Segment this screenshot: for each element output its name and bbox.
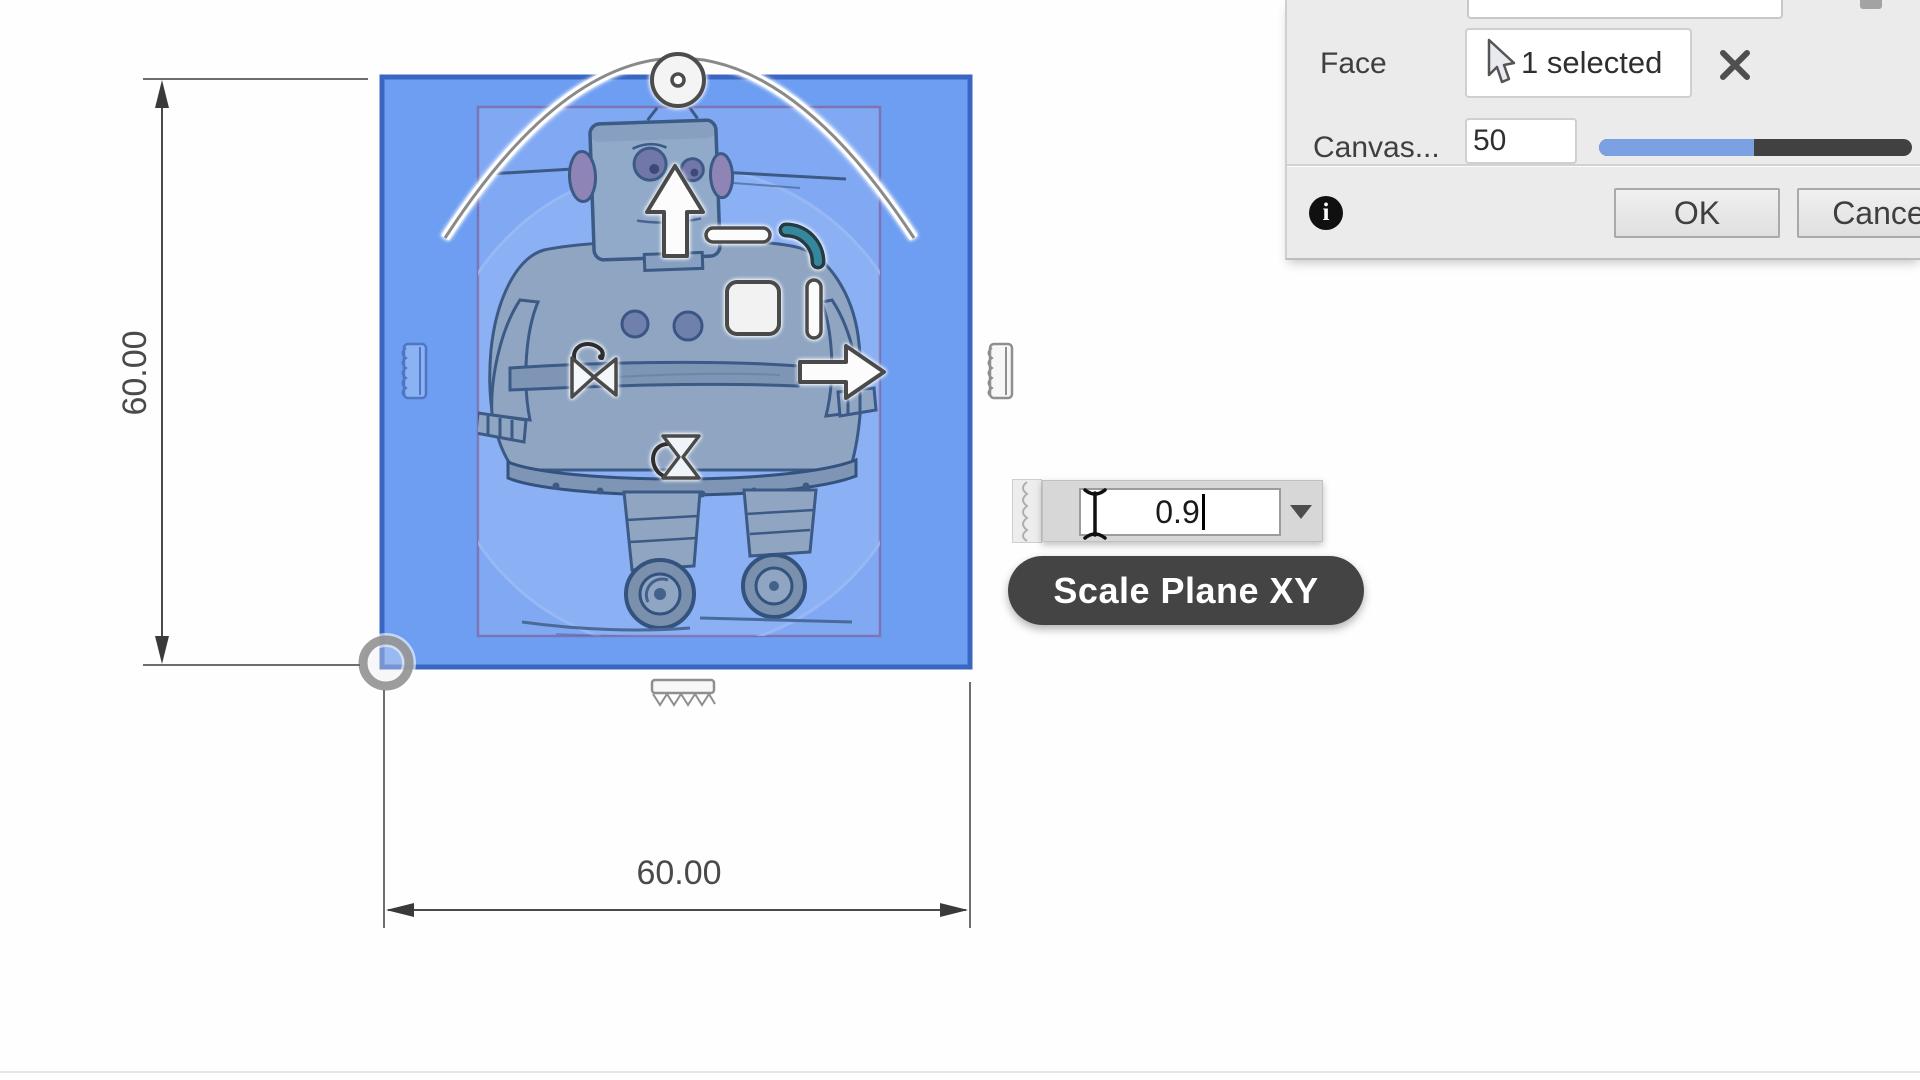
info-icon[interactable]: i	[1309, 196, 1343, 230]
right-edge-glyph-icon	[989, 344, 1013, 398]
rotate-knob-center	[672, 74, 684, 86]
scale-value-text: 0.9	[1155, 494, 1199, 531]
opacity-slider-fill	[1599, 139, 1754, 156]
face-row-label: Face	[1320, 47, 1387, 81]
scale-input-grip[interactable]	[1012, 479, 1042, 543]
selection-cursor-icon	[1483, 37, 1517, 89]
insert-canvas-dialog: Face 1 selected Canvas... 50 i OK Cancel	[1285, 0, 1920, 260]
free-move-square-handle[interactable]	[727, 282, 779, 334]
corner-anchor-handle[interactable]	[363, 640, 409, 686]
dialog-separator	[1287, 164, 1920, 167]
scale-y-bar-handle[interactable]	[807, 280, 821, 338]
width-dimension-label[interactable]: 60.00	[636, 854, 721, 892]
text-caret	[1202, 494, 1205, 530]
grip-wave-icon	[1013, 480, 1041, 542]
canvas-file-field[interactable]	[1467, 0, 1783, 19]
clear-selection-icon[interactable]	[1717, 47, 1753, 83]
viewport-bottom-edge	[0, 1071, 1920, 1073]
viewport: 60.00 60.00 Face	[0, 0, 1920, 1080]
opacity-value-field[interactable]: 50	[1465, 118, 1577, 164]
face-selection-field[interactable]: 1 selected	[1465, 28, 1692, 98]
ibeam-cursor-icon	[1080, 486, 1110, 542]
height-dimension-label[interactable]: 60.00	[116, 330, 154, 415]
cancel-button[interactable]: Cancel	[1797, 188, 1920, 238]
opacity-slider[interactable]	[1599, 139, 1912, 156]
canvas-opacity-label: Canvas...	[1313, 131, 1440, 165]
scale-x-bar-handle[interactable]	[706, 228, 770, 242]
dropdown-button-partial[interactable]	[1860, 0, 1882, 9]
scale-dropdown-arrow-icon[interactable]	[1290, 505, 1312, 519]
face-selection-count: 1 selected	[1521, 45, 1662, 81]
left-edge-glyph-icon	[403, 344, 427, 398]
ok-button[interactable]: OK	[1614, 188, 1780, 238]
stretch-x-curl-dot	[598, 354, 604, 360]
scale-plane-xy-tooltip: Scale Plane XY	[1008, 556, 1364, 625]
bottom-hatch-glyph-icon	[652, 680, 715, 705]
